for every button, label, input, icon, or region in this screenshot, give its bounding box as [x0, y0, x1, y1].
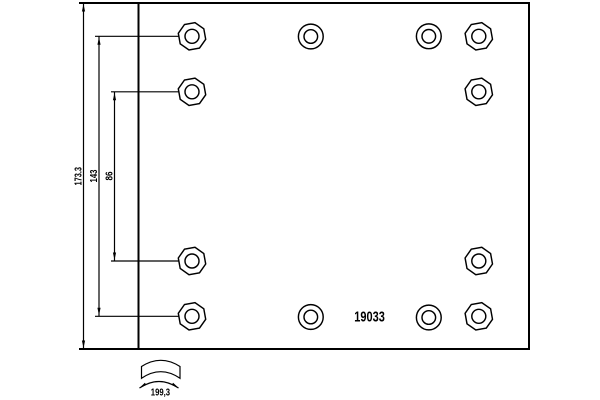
svg-text:86: 86	[105, 171, 116, 180]
svg-text:173.3: 173.3	[74, 167, 85, 186]
svg-text:19033: 19033	[354, 309, 385, 326]
svg-text:143: 143	[89, 169, 100, 182]
svg-text:199,3: 199,3	[151, 388, 171, 399]
